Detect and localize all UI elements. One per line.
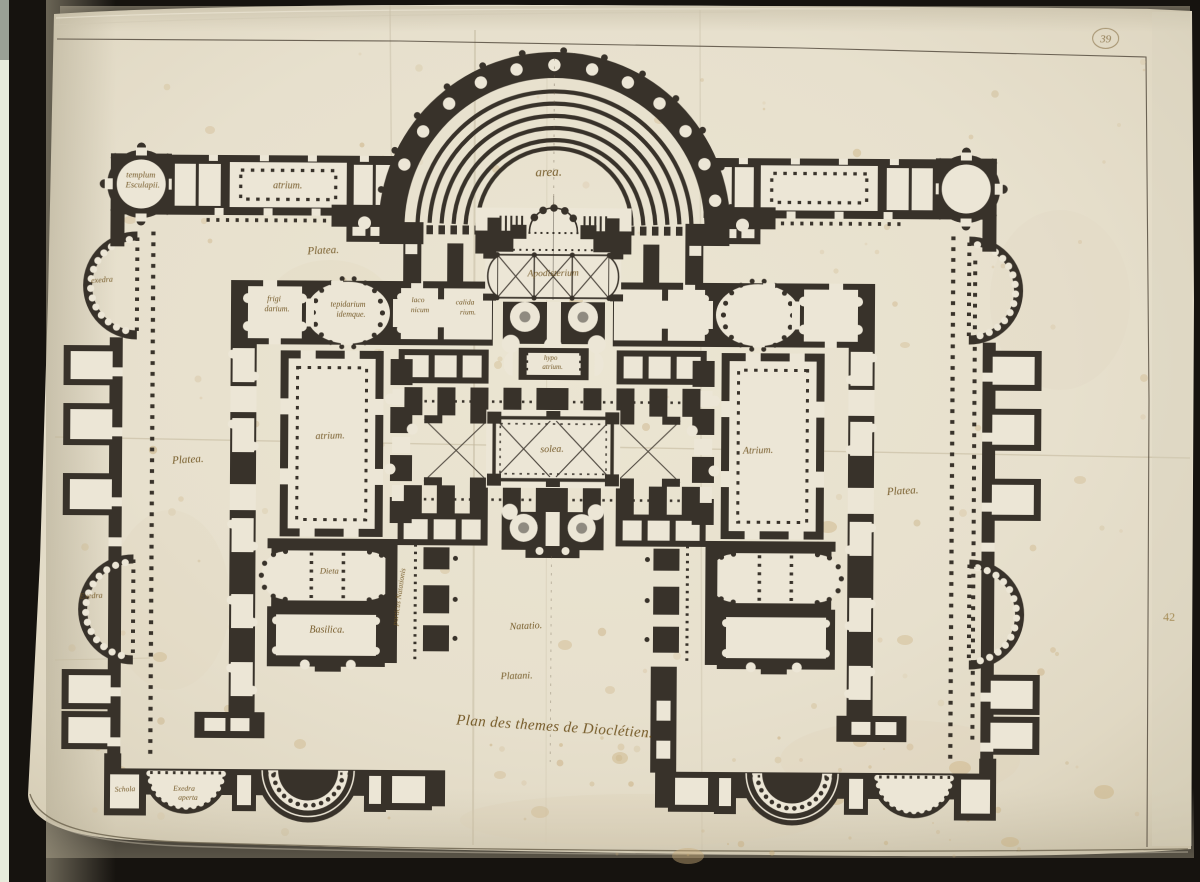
svg-text:42: 42 <box>1163 610 1175 624</box>
svg-text:Platea.: Platea. <box>171 453 204 467</box>
svg-text:Dieta: Dieta <box>319 566 339 576</box>
svg-text:rium.: rium. <box>460 307 476 316</box>
svg-text:hypo: hypo <box>544 354 558 362</box>
svg-text:Platani.: Platani. <box>500 670 533 682</box>
svg-text:laco: laco <box>412 295 425 304</box>
svg-text:nicum: nicum <box>411 305 430 314</box>
svg-text:calida: calida <box>456 297 475 306</box>
svg-text:Esculapii.: Esculapii. <box>125 179 160 189</box>
svg-text:Atrium.: Atrium. <box>742 445 774 457</box>
svg-text:aperta: aperta <box>178 793 198 802</box>
svg-text:tepidarium: tepidarium <box>330 300 365 309</box>
svg-text:atrium.: atrium. <box>315 430 344 442</box>
svg-text:area.: area. <box>535 164 562 180</box>
svg-text:Exedra: Exedra <box>78 591 102 601</box>
svg-text:39: 39 <box>1099 33 1112 45</box>
svg-text:Apodisterium: Apodisterium <box>527 269 579 280</box>
svg-text:exedra: exedra <box>91 275 113 285</box>
svg-text:Platea.: Platea. <box>306 244 339 257</box>
svg-text:frigi: frigi <box>267 294 281 303</box>
svg-text:atrium.: atrium. <box>542 363 563 371</box>
svg-text:atrium.: atrium. <box>273 180 302 191</box>
svg-text:Exedra: Exedra <box>172 784 195 793</box>
svg-text:idemque.: idemque. <box>336 310 365 319</box>
svg-text:solea.: solea. <box>540 444 564 456</box>
svg-text:darium.: darium. <box>264 304 289 313</box>
svg-text:Natatio.: Natatio. <box>508 620 542 633</box>
svg-text:Platea.: Platea. <box>886 484 919 498</box>
svg-text:templum: templum <box>126 169 155 179</box>
svg-text:Schola: Schola <box>115 784 136 794</box>
svg-text:Basilica.: Basilica. <box>309 625 344 636</box>
